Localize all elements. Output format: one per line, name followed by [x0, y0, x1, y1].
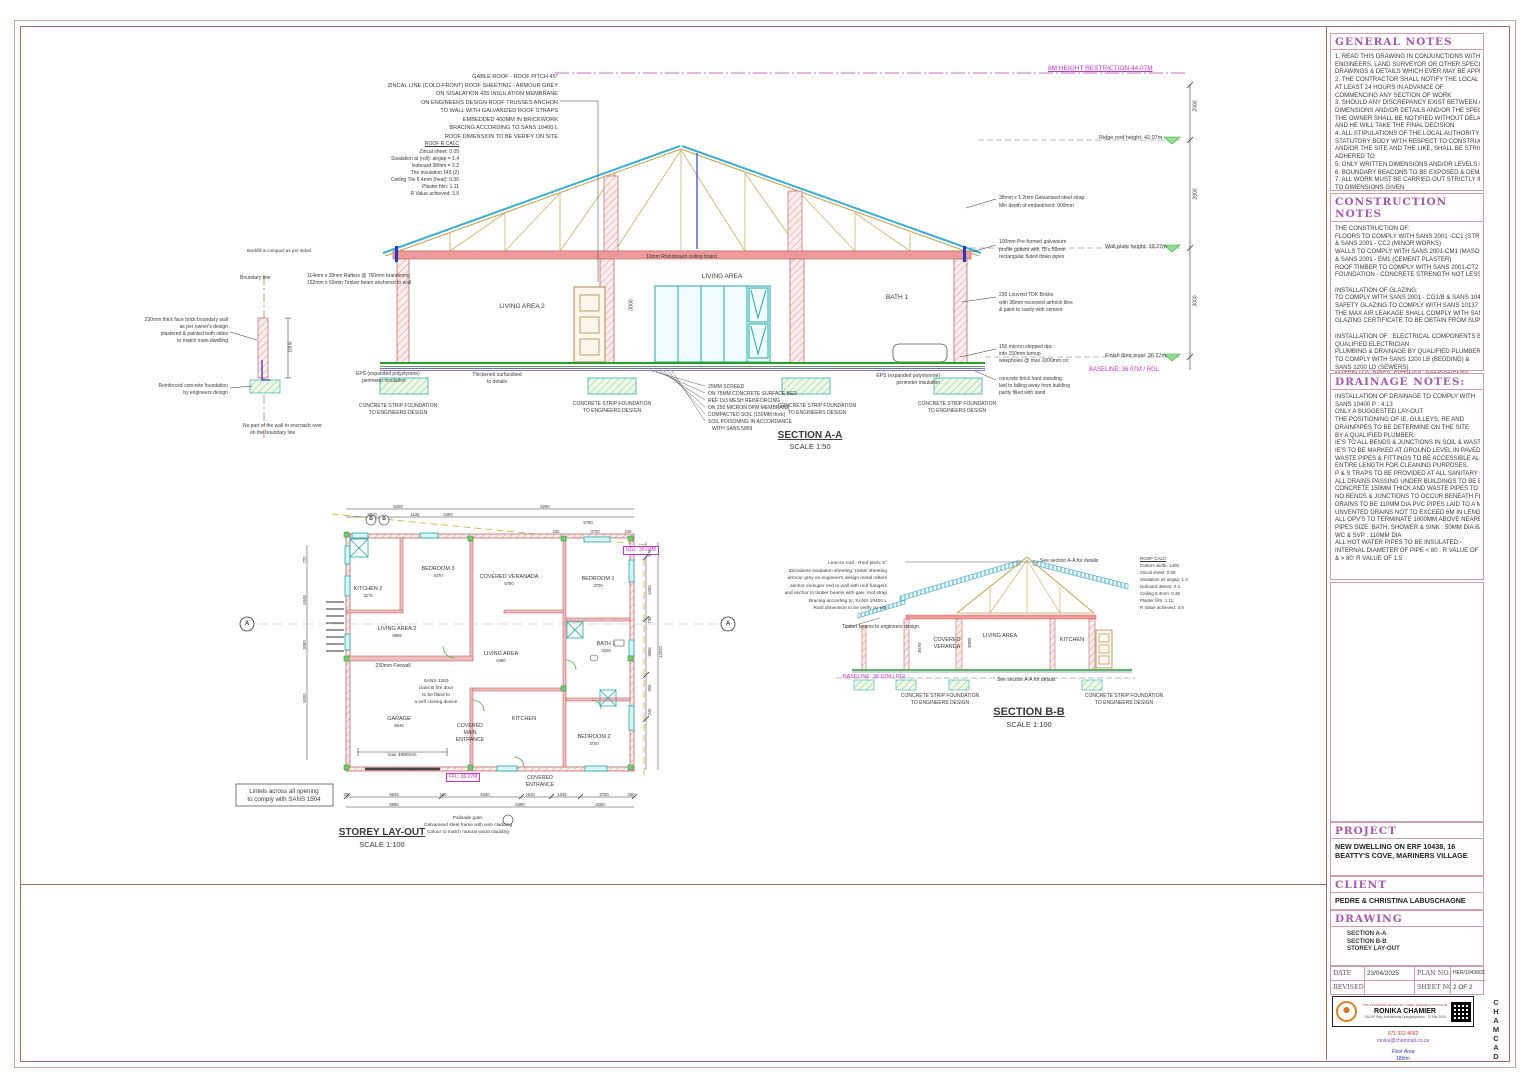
note-line: TO COMPLY WITH SANS 2001 - CG1/B & SANS … — [1335, 294, 1480, 302]
notes-spacer — [1330, 582, 1484, 822]
note-line: ALL HOT WATER PIPES TO BE INSULATED:- — [1335, 539, 1480, 547]
note-line: SECTION A-A — [1347, 930, 1479, 938]
note-line: DIMENSIONS AND/OR DETAILS AND/OR THE SPE… — [1335, 107, 1480, 115]
note-line: UNVENTED DRAINS NOT TO EXCEED 6M IN LENG… — [1335, 509, 1480, 517]
general-notes-title: GENERAL NOTES — [1331, 34, 1483, 50]
brand-letter: D — [1487, 1052, 1505, 1061]
note-line: 6. BOUNDARY BEACONS TO BE EXPOSED & DEMA… — [1335, 169, 1480, 177]
titleblock-table: DATE 23/04/2025 PLAN NO. HER/10438/2025 … — [1330, 966, 1484, 995]
note-line: DRAINPIPES TO BE DETERMINE ON THE SITE — [1335, 424, 1480, 432]
general-notes-box: GENERAL NOTES 1. READ THIS DRAWING IN CO… — [1330, 33, 1484, 191]
brand-letter: A — [1487, 1043, 1505, 1052]
stamp-email: ronika@chamcad.co.za — [1332, 1038, 1474, 1045]
note-line — [1335, 279, 1480, 287]
stamp-phone: 071 322 4662 — [1332, 1031, 1474, 1038]
note-line: & SANS 2001 - EM1 (CEMENT PLASTER) — [1335, 256, 1480, 264]
note-line: CONCRETE 150MM THICK AND WASTE PIPES TO … — [1335, 485, 1480, 493]
note-line: INSTALLATION OF DRAINAGE TO COMPLY WITH — [1335, 393, 1480, 401]
revised-label: REVISED — [1331, 981, 1365, 994]
note-line: PLUMBING & DRAINAGE BY QUALIFIED PLUMBER — [1335, 348, 1480, 356]
drainage-notes-box: DRAINAGE NOTES: INSTALLATION OF DRAINAGE… — [1330, 373, 1484, 580]
note-line: SECTION B-B — [1347, 938, 1479, 946]
note-line: DRAWINGS & DETAILS WHICH EVER MAY BE APP… — [1335, 68, 1480, 76]
client-label: CLIENT — [1331, 877, 1483, 893]
project-line1: NEW DWELLING ON ERF 10438, 16 — [1335, 842, 1479, 851]
note-line: SANS 1200 LD (SEWERS) — [1335, 364, 1480, 372]
brand-letter: M — [1487, 1025, 1505, 1034]
brand-vertical: CHAMCAD — [1487, 998, 1505, 1061]
note-line: SANS 10400 P : 4.13 — [1335, 401, 1480, 409]
note-line: DRAINS TO BE 110MM DIA PVC PIPES LAID TO… — [1335, 501, 1480, 509]
construction-notes-title: CONSTRUCTION NOTES — [1331, 194, 1483, 222]
note-line: INSTALLATION OF : ELECTRICAL COMPONENTS … — [1335, 333, 1480, 341]
construction-notes-box: CONSTRUCTION NOTES THE CONSTRUCTION OF:F… — [1330, 193, 1484, 371]
note-line: FLOORS TO COMPLY WITH SANS 2001 -CC1 (ST… — [1335, 233, 1480, 241]
date-label: DATE — [1331, 967, 1365, 981]
note-line: & > 80: R VALUE OF 1.5 — [1335, 555, 1480, 563]
stamp-card: PROFESSIONAL ARCHITECTURAL DRAUGHTSPERSO… — [1332, 996, 1474, 1027]
client-box: CLIENT PEDRE & CHRISTINA LABUSCHAGNE — [1330, 876, 1484, 910]
brand-letter: C — [1487, 1034, 1505, 1043]
note-line: WALLS TO COMPLY WITH SANS 2001-CM1 (MASO… — [1335, 248, 1480, 256]
revised-value — [1365, 981, 1415, 994]
note-line: SAFETY GLAZING TO COMPLY WITH SANS 10137… — [1335, 302, 1480, 310]
note-line: P & S TRAPS TO BE PROVIDED AT ALL SANITA… — [1335, 470, 1480, 478]
note-line: STATUTORY BODY WITH RESPECT TO CONSTRUCT… — [1335, 138, 1480, 146]
drawing-sheet: 8M HEIGHT RESTRICTION 44.07MGABLE ROOF -… — [0, 0, 1529, 1080]
sheet-no-label: SHEET NO — [1415, 981, 1451, 994]
date-value: 23/04/2025 — [1365, 967, 1415, 981]
sheet-no-value: 2 OF 2 — [1451, 981, 1485, 994]
drainage-notes-title: DRAINAGE NOTES: — [1331, 374, 1483, 390]
note-line: INTERNAL DIAMETER OF PIPE < 80 : R VALUE… — [1335, 547, 1480, 555]
drawing-box: DRAWING SECTION A-ASECTION B-BSTOREY LAY… — [1330, 910, 1484, 966]
note-line: THE MAX AIR LEAKAGE SHALL COMPLY WITH SA… — [1335, 310, 1480, 318]
note-line: BY A QUALIFIED PLUMBER. — [1335, 432, 1480, 440]
client-name: PEDRE & CHRISTINA LABUSCHAGNE — [1331, 893, 1483, 908]
note-line: THE CONSTRUCTION OF: — [1335, 225, 1480, 233]
note-line: COMMENCING ANY SECTION OF WORK — [1335, 92, 1480, 100]
note-line: 3. SHOULD ANY DISCREPANCY EXIST BETWEEN … — [1335, 99, 1480, 107]
note-line: INSTALLATION OF GLAZING: — [1335, 287, 1480, 295]
project-line2: BEATTY'S COVE, MARINERS VILLAGE — [1335, 851, 1479, 860]
project-box: PROJECT NEW DWELLING ON ERF 10438, 16 BE… — [1330, 822, 1484, 876]
brand-letter: H — [1487, 1007, 1505, 1016]
drainage-notes-body: INSTALLATION OF DRAINAGE TO COMPLY WITHS… — [1331, 390, 1483, 564]
note-line: ALL DRAINS PASSING UNDER BUILDINGS TO BE… — [1335, 478, 1480, 486]
note-line: ROOF TIMBER TO COMPLY WITH SANS 2001-CT2 — [1335, 264, 1480, 272]
drawing-list: SECTION A-ASECTION B-BSTOREY LAY-OUT — [1331, 927, 1483, 956]
note-line: IE'S TO BE MARKED AT GROUND LEVEL IN PAV… — [1335, 447, 1480, 455]
note-line: FOUNDATION - CONCRETE STRENGTH NOT LESS … — [1335, 271, 1480, 279]
note-line: 4. ALL STIPULATIONS OF THE LOCAL AUTHORI… — [1335, 130, 1480, 138]
note-line: ONLY A SUGGESTED LAY-OUT — [1335, 408, 1480, 416]
note-line: WC & SVP : 110MM DIA — [1335, 532, 1480, 540]
note-line: TO DIMENSIONS GIVEN — [1335, 184, 1480, 192]
note-line: PIPES SIZE: BATH, SHOWER & SINK : 50MM D… — [1335, 524, 1480, 532]
drawing-label: DRAWING — [1331, 911, 1483, 927]
stamp-reg: SACAP Reg: Architectural Draughtsperson … — [1359, 1016, 1451, 1020]
note-line: AND HE WILL TAKE THE FINAL DECISION — [1335, 122, 1480, 130]
note-line: QUALIFIED ELECTRICIAN — [1335, 341, 1480, 349]
note-line: & SANS 2001 - CC2 (MINOR WORKS) — [1335, 240, 1480, 248]
brand-letter: C — [1487, 998, 1505, 1007]
brand-letter: A — [1487, 1016, 1505, 1025]
stamp-org: PROFESSIONAL ARCHITECTURAL DRAUGHTSPERSO… — [1359, 1004, 1451, 1008]
architect-stamp: PROFESSIONAL ARCHITECTURAL DRAUGHTSPERSO… — [1332, 996, 1474, 1063]
qr-code-icon — [1451, 1002, 1471, 1022]
plan-no-value: HER/10438/2025 — [1451, 967, 1485, 981]
note-line: IE'S TO ALL BENDS & JUNCTIONS IN SOIL & … — [1335, 439, 1480, 447]
note-line: ENGINEERS, LAND SURVEYOR OR OTHER SPECIA… — [1335, 61, 1480, 69]
note-line: ENTIRE LENGTH FOR CLEANING PURPOSES. — [1335, 462, 1480, 470]
project-label: PROJECT — [1331, 823, 1483, 839]
note-line: 5. ONLY WRITTEN DIMENSIONS AND/OR LEVELS… — [1335, 161, 1480, 169]
note-line: 7. ALL WORK MUST BE CARRIED OUT STRICTLY… — [1335, 176, 1480, 184]
general-notes-body: 1. READ THIS DRAWING IN CONJUNCTIONS WIT… — [1331, 50, 1483, 194]
note-line: ALL OPV'S TO TERMINATE 1000MM ABOVE NEAR… — [1335, 516, 1480, 524]
note-line: ADHERED TO — [1335, 153, 1480, 161]
note-line: THE OWNER SHALL BE NOTIFIED WITHOUT DELA… — [1335, 115, 1480, 123]
note-line: 1. READ THIS DRAWING IN CONJUNCTIONS WIT… — [1335, 53, 1480, 61]
note-line: STOREY LAY-OUT — [1347, 945, 1479, 953]
note-line: TO COMPLY WITH SANS 1200 LB (BEDDING) & — [1335, 356, 1480, 364]
note-line — [1335, 325, 1480, 333]
section-a-drawing — [230, 73, 1193, 440]
stamp-area-value: 186m² — [1332, 1056, 1474, 1063]
note-line: AT LEAST 24 HOURS IN ADVANCE OF — [1335, 84, 1480, 92]
note-line: 2. THE CONTRACTOR SHALL NOTIFY THE LOCAL… — [1335, 76, 1480, 84]
note-line: WASTE PIPES & FITTINGS TO BE ACCESSIBLE … — [1335, 455, 1480, 463]
section-b-drawing — [836, 557, 1135, 690]
note-line: GLAZING CERTIFICATE TO BE OBTAIN FROM SU… — [1335, 317, 1480, 325]
note-line: THE POSITIONING OF IE, GULLEYS, RE AND — [1335, 416, 1480, 424]
drawing-linework — [0, 0, 1529, 1080]
plan-no-label: PLAN NO. — [1415, 967, 1451, 981]
note-line: AND/OR THE SITE AND THE LIKE, SHALL BE S… — [1335, 145, 1480, 153]
floor-plan-drawing — [236, 509, 735, 825]
stamp-logo-icon — [1336, 1001, 1357, 1022]
note-line: NO BENDS & JUNCTIONS TO OCCUR BENEATH FL… — [1335, 493, 1480, 501]
stamp-area-label: Floor Area — [1332, 1049, 1474, 1056]
